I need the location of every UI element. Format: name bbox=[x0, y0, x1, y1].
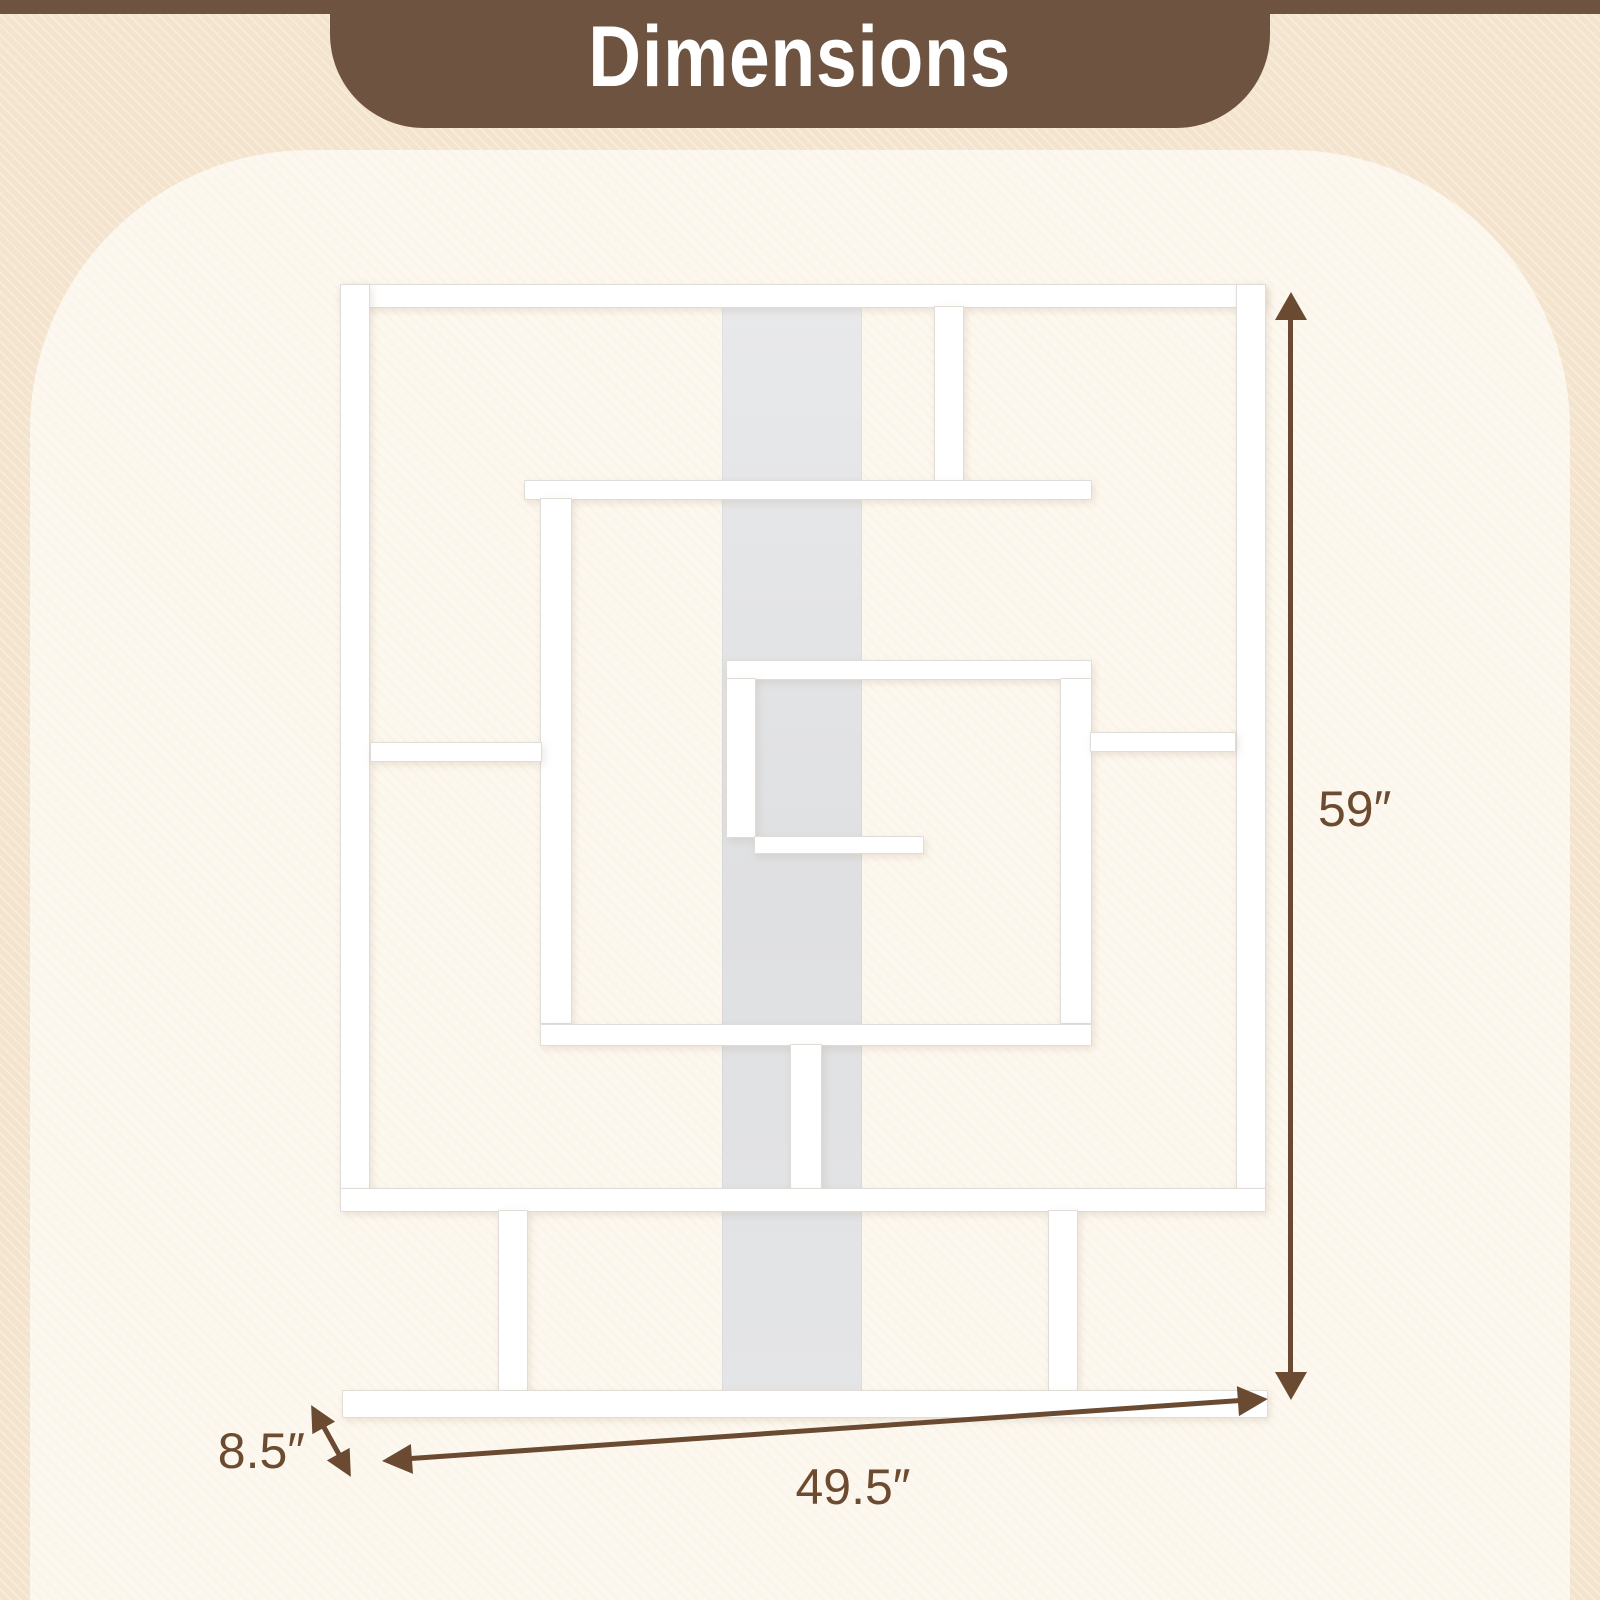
width-arrow-right-head-icon bbox=[1237, 1384, 1269, 1416]
width-value: 49.5″ bbox=[758, 1458, 948, 1516]
depth-value: 8.5″ bbox=[140, 1422, 305, 1480]
bookshelf-right-mid-shelf bbox=[1090, 732, 1236, 752]
bookshelf-small-box-wall bbox=[726, 678, 756, 838]
dimensions-diagram: Dimensions 59″ bbox=[0, 0, 1600, 1600]
height-arrow-down-icon bbox=[1275, 1372, 1307, 1400]
bookshelf-top-panel bbox=[340, 284, 1266, 308]
bookshelf-bottom-mid-divider bbox=[790, 1044, 822, 1190]
bookshelf-right-panel bbox=[1236, 284, 1266, 1190]
bookshelf-third-shelf bbox=[726, 660, 1092, 680]
height-value: 59″ bbox=[1318, 780, 1391, 838]
height-arrow-up-icon bbox=[1275, 292, 1307, 320]
page-title: Dimensions bbox=[589, 8, 1012, 121]
bookshelf-mid-left-sidewall bbox=[540, 498, 572, 1024]
bookshelf-left-panel bbox=[340, 284, 370, 1190]
bookshelf-long-bottom-shelf bbox=[340, 1188, 1266, 1212]
width-arrow-left-head-icon bbox=[381, 1444, 413, 1476]
bookshelf-second-shelf bbox=[524, 480, 1092, 500]
bookshelf-left-mid-shelf bbox=[370, 742, 542, 762]
bookshelf-top-right-divider bbox=[934, 306, 964, 482]
bookshelf-bottom-right-support bbox=[1048, 1210, 1078, 1392]
bookshelf-small-shelf bbox=[754, 836, 924, 854]
bookshelf-bottom-left-support bbox=[498, 1210, 528, 1392]
height-arrow-line bbox=[1288, 316, 1293, 1378]
header-banner: Dimensions bbox=[330, 0, 1270, 128]
bookshelf-fourth-shelf bbox=[540, 1024, 1092, 1046]
bookshelf-mid-right-sidewall bbox=[1060, 678, 1092, 1024]
